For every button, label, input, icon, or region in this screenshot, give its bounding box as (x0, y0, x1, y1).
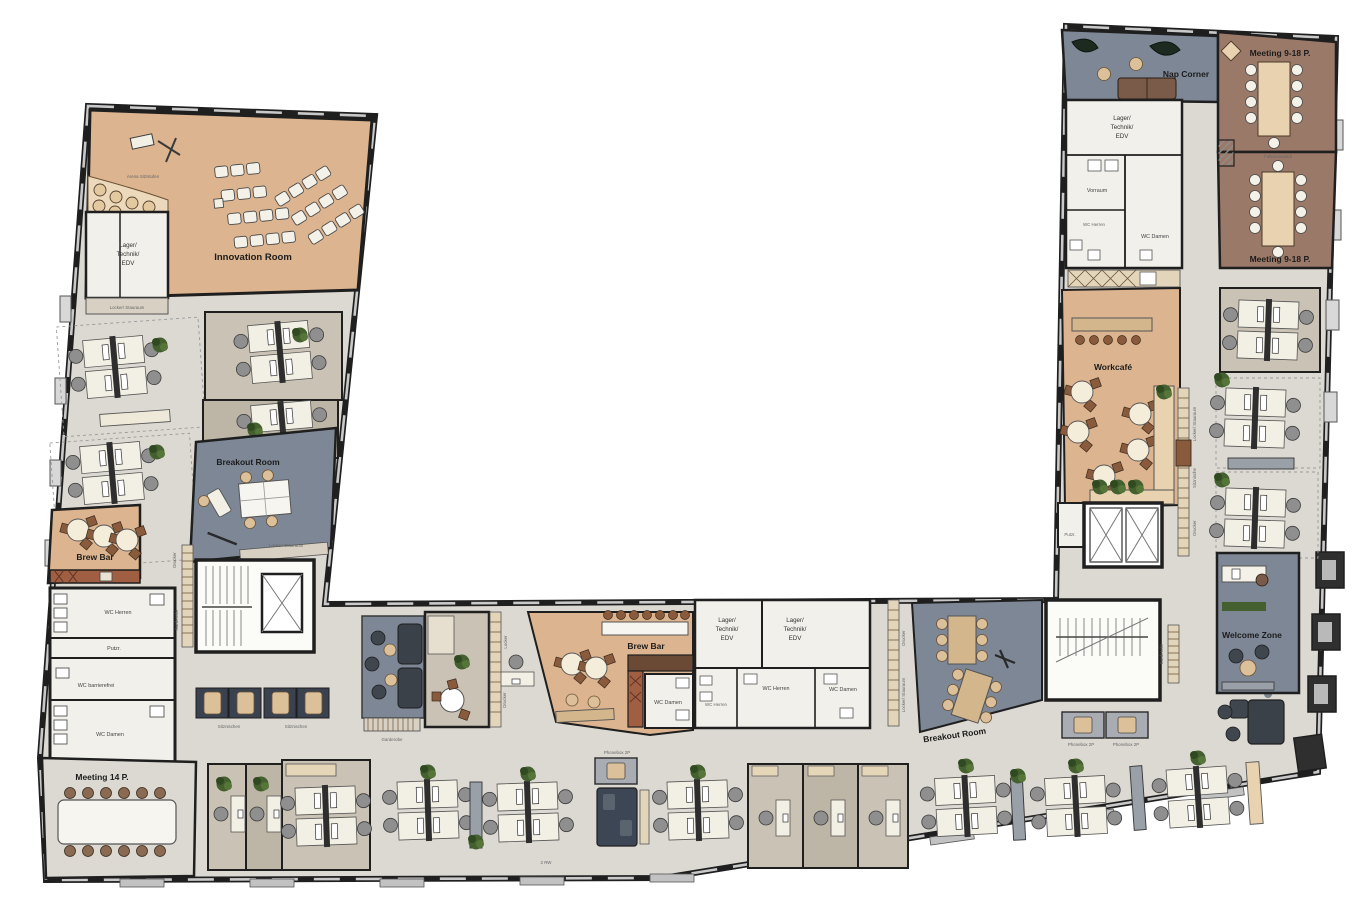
label-falttrennwand: Falttrennwand (1264, 154, 1292, 159)
label-wc-damen-brewbar: WC Damen (654, 700, 682, 706)
svg-text:Technik/: Technik/ (117, 251, 140, 258)
label-locker-stauraum-right: Locker/ Stauraum (1192, 406, 1197, 441)
label-wc-barrierefrei: WC barrierefrei (78, 683, 115, 689)
label-phonebox-3: Phonebox 2P (604, 750, 630, 755)
kitchen-counter (628, 655, 693, 671)
svg-text:Technik/: Technik/ (784, 626, 807, 633)
label-phonebox-1: Phonebox 2P (1068, 742, 1094, 747)
label-breakout-left: Breakout Room (216, 457, 280, 467)
label-drucker-band: Drucker (502, 692, 507, 708)
svg-text:Lager/: Lager/ (1113, 115, 1131, 122)
floor-plan-svg: Innovation Room Arena Sitzstufen Lager/ … (0, 0, 1364, 905)
label-wc-herren-c2: WC Herren (763, 686, 790, 692)
label-drucker-left: Drucker (172, 552, 177, 568)
label-drucker-right: Drucker (1192, 520, 1197, 536)
locker-column (1178, 388, 1189, 556)
label-brewbar-left: Brew Bar (76, 552, 114, 562)
floor-plan-stage: Innovation Room Arena Sitzstufen Lager/ … (0, 0, 1364, 905)
svg-text:EDV: EDV (122, 260, 136, 267)
folding-wall-stack (1218, 140, 1234, 166)
phonebox (1106, 712, 1148, 738)
label-wc-herren-c1: WC Herren (705, 702, 728, 707)
svg-text:Lager/: Lager/ (786, 617, 804, 624)
label-wc-damen-c: WC Damen (829, 687, 857, 693)
label-sitznischen-1: Sitznischen (218, 724, 241, 729)
workcafe-hightable (1072, 318, 1152, 345)
label-brewbar-center: Brew Bar (627, 641, 665, 651)
svg-text:EDV: EDV (1116, 133, 1130, 140)
label-arena: Arena Sitzstufen (127, 174, 160, 179)
label-innovation-room: Innovation Room (214, 252, 292, 263)
label-garderobe-band: Garderobe (382, 737, 404, 742)
wardrobe-strip-right (1068, 270, 1180, 287)
divider-shelf (1228, 458, 1294, 469)
label-garderobe-right: Garderobe (1159, 643, 1164, 665)
label-phonebox-2: Phonebox 2P (1113, 742, 1139, 747)
svg-text:Technik/: Technik/ (1111, 124, 1134, 131)
garderobe-strip (364, 718, 420, 731)
label-wc-damen-left: WC Damen (96, 732, 124, 738)
label-workcafe: Workcafé (1094, 362, 1132, 372)
label-meeting-918-top: Meeting 9-18 P. (1250, 48, 1311, 58)
label-nap-corner: Nap Corner (1163, 69, 1210, 79)
brewbar-left-counter (50, 570, 140, 583)
svg-text:EDV: EDV (789, 635, 803, 642)
offices-bottom-center (748, 764, 908, 868)
label-sitznische-right: Sitznische (1192, 467, 1197, 488)
stair-core-center (1046, 600, 1160, 700)
svg-text:Technik/: Technik/ (716, 626, 739, 633)
label-welcome-zone: Welcome Zone (1222, 630, 1282, 640)
label-drucker-center: Drucker (901, 630, 906, 646)
phonebox (1062, 712, 1104, 738)
label-locker-stauraum: Locker/ Stauraum (269, 543, 304, 548)
svg-text:EDV: EDV (721, 635, 735, 642)
cabinet (428, 616, 454, 654)
label-locker-band: Locker (503, 635, 508, 649)
label-wc-herren-left: WC Herren (105, 610, 132, 616)
kitchen-counter-side (628, 671, 643, 727)
label-locker-stauraum-center: Locker/ Stauraum (901, 677, 906, 712)
label-putzraum-right: Putzr. (1064, 532, 1075, 537)
offices-bottom-left (208, 760, 370, 870)
svg-text:Lager/: Lager/ (119, 242, 137, 249)
label-meeting-14: Meeting 14 P. (75, 772, 128, 782)
label-wc-herren-right: WC Herren (1083, 222, 1106, 227)
label-locker-stauraum: Locker/ Stauraum (110, 305, 145, 310)
niche-seat (1176, 440, 1191, 466)
locker-column (182, 545, 193, 647)
locker-column (888, 600, 899, 726)
label-annotation: 2 RW (541, 860, 553, 865)
label-wc-damen-right: WC Damen (1141, 234, 1169, 240)
svg-text:Lager/: Lager/ (718, 617, 736, 624)
locker-column (490, 612, 501, 727)
stair-core-left (196, 560, 314, 652)
label-meeting-918-bottom: Meeting 9-18 P. (1250, 254, 1311, 264)
label-vorraum: Vorraum (1087, 188, 1108, 194)
label-putzraum-left: Putzr. (107, 646, 121, 652)
label-garderobe-left: Garderobe (174, 609, 179, 631)
label-sitznischen-2: Sitznischen (285, 724, 308, 729)
